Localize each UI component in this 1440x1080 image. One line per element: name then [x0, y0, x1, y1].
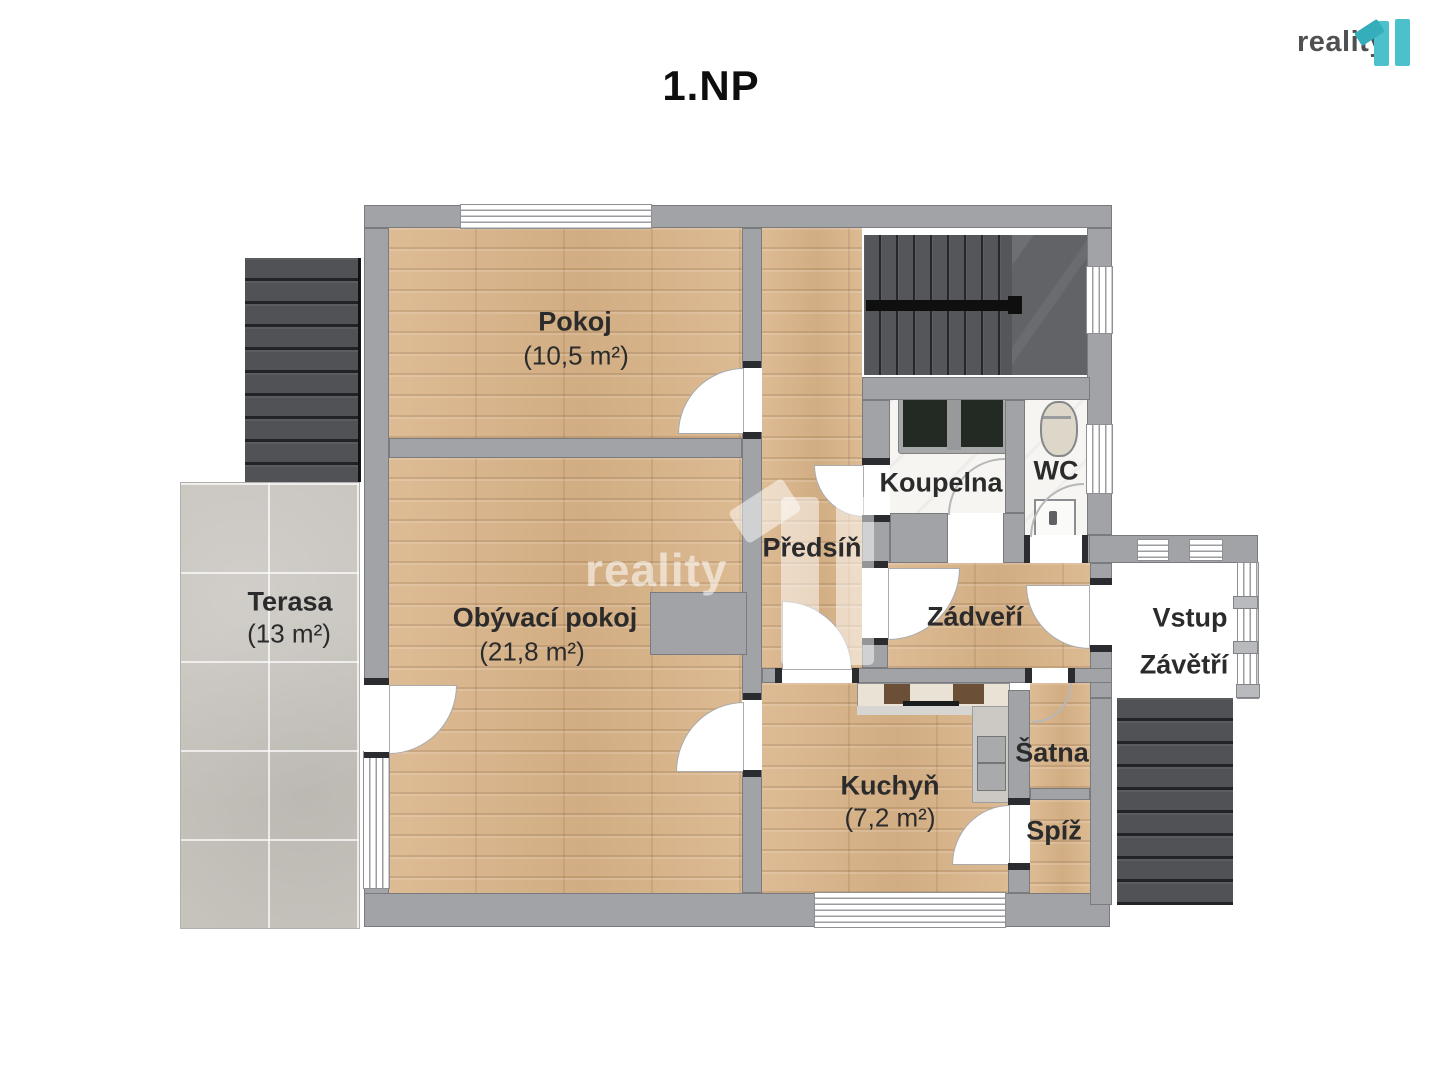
window: [1087, 425, 1112, 493]
wall: [742, 432, 762, 700]
door-jamb: [862, 458, 890, 465]
door-opening: [1030, 535, 1082, 563]
staircase-handrail-end: [1008, 296, 1022, 314]
wall: [1087, 228, 1112, 267]
brand-logo-one-icon: [1395, 19, 1410, 66]
chimney-block: [650, 592, 747, 655]
door-jamb: [852, 668, 859, 683]
room-label-wc: WC: [1034, 456, 1079, 487]
room-label-kuchyn: Kuchyň: [840, 771, 939, 802]
door-opening: [1090, 585, 1112, 645]
door-opening: [1032, 668, 1068, 683]
wall: [1087, 493, 1112, 535]
wall: [389, 438, 742, 458]
door-opening: [364, 685, 389, 752]
window: [1087, 267, 1112, 333]
door-jamb: [1024, 535, 1030, 563]
door-jamb: [743, 693, 761, 700]
wall: [1003, 513, 1025, 563]
room-terasa-floor: [180, 482, 360, 929]
wall: [1030, 788, 1090, 800]
outdoor-stairs-top-left: [245, 258, 361, 482]
railing-post: [1236, 684, 1260, 698]
wall: [364, 205, 461, 228]
window: [364, 752, 389, 888]
staircase-landing: [1012, 235, 1087, 375]
wall: [862, 400, 890, 465]
wall: [852, 668, 1032, 683]
door-jamb: [1082, 535, 1088, 563]
watermark-one-icon: [781, 497, 819, 665]
porch-railing: [1138, 540, 1168, 560]
toilet-tank-line: [1043, 416, 1071, 419]
outdoor-stairs-bottom-right: [1117, 698, 1233, 905]
watermark-one-icon: [836, 497, 874, 665]
railing-post: [1233, 641, 1258, 654]
door-jamb: [1008, 863, 1030, 870]
room-label-terasa: Terasa: [247, 587, 332, 618]
wall: [364, 228, 389, 685]
room-area-terasa: (13 m²): [247, 619, 331, 650]
door-opening: [948, 513, 1003, 563]
door-jamb: [1090, 645, 1112, 652]
room-label-predsin: Předsíň: [762, 533, 861, 564]
room-label-satna: Šatna: [1015, 738, 1089, 769]
room-label-obyvaci-pokoj: Obývací pokoj: [453, 603, 638, 634]
room-area-pokoj: (10,5 m²): [523, 341, 628, 372]
wall: [742, 228, 762, 368]
page-title: 1.NP: [611, 62, 811, 110]
door-jamb: [743, 432, 761, 439]
wall: [1005, 400, 1025, 513]
railing-post: [1233, 596, 1258, 609]
wall: [890, 513, 948, 563]
toilet: [1040, 401, 1078, 457]
wall: [651, 205, 1112, 228]
bathtub-divider: [947, 398, 961, 450]
room-area-obyvaci-pokoj: (21,8 m²): [479, 637, 584, 668]
door-jamb: [743, 770, 761, 777]
window: [815, 893, 1005, 927]
watermark-text: reality: [585, 543, 728, 597]
wall: [742, 770, 762, 893]
room-label-koupelna: Koupelna: [879, 468, 1002, 499]
room-label-zadveri: Zádveří: [927, 602, 1023, 633]
door-jamb: [743, 361, 761, 368]
room-area-kuchyn: (7,2 m²): [845, 803, 936, 834]
room-label-pokoj: Pokoj: [538, 307, 612, 338]
bathtub-basin: [957, 400, 1003, 447]
door-jamb: [775, 668, 782, 683]
door-opening: [782, 668, 852, 683]
wall: [364, 893, 815, 927]
door-jamb: [1008, 798, 1030, 805]
kitchen-counter-edge: [857, 706, 975, 715]
porch-wall: [1087, 535, 1258, 563]
staircase-handrail: [866, 300, 1018, 311]
window: [461, 205, 651, 228]
door-jamb: [1025, 668, 1032, 683]
wall: [1087, 333, 1112, 425]
porch-railing: [1238, 563, 1258, 698]
door-jamb: [364, 752, 389, 758]
kitchen-sink: [977, 736, 1006, 763]
floor-plan-page: 1.NP reality: [0, 0, 1440, 1080]
door-jamb: [1068, 668, 1075, 683]
door-opening: [742, 700, 762, 770]
door-opening: [742, 368, 762, 432]
room-label-vstup: Vstup: [1152, 603, 1227, 634]
wall: [862, 377, 1090, 400]
kitchen-appliance: [977, 763, 1006, 791]
room-obyvaci-pokoj-floor: [389, 458, 742, 893]
room-label-spiz: Spíž: [1026, 816, 1082, 847]
room-label-zavetri: Závětří: [1140, 650, 1229, 681]
room-spiz-floor: [1030, 800, 1090, 893]
bathtub-basin: [903, 400, 949, 447]
porch-railing: [1190, 540, 1222, 560]
wall: [1090, 698, 1112, 905]
door-jamb: [1090, 578, 1112, 585]
door-jamb: [364, 678, 389, 685]
